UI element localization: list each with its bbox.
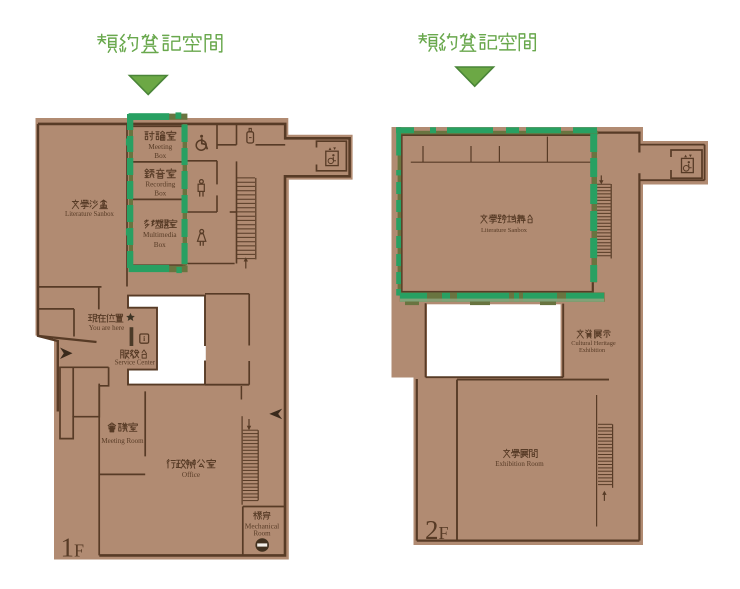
svg-text:You are here: You are here xyxy=(89,324,124,332)
svg-text:Exhibition Room: Exhibition Room xyxy=(495,460,544,468)
svg-text:Office: Office xyxy=(182,471,200,479)
svg-text:Meeting Room: Meeting Room xyxy=(101,437,144,445)
svg-text:Box: Box xyxy=(154,152,166,160)
svg-text:Meeting: Meeting xyxy=(148,143,172,151)
svg-text:Room: Room xyxy=(253,529,271,537)
svg-text:Multimedia: Multimedia xyxy=(143,231,177,239)
svg-text:Literature Sanbox: Literature Sanbox xyxy=(65,211,114,218)
svg-text:Service Center: Service Center xyxy=(115,360,156,367)
svg-text:Recording: Recording xyxy=(145,181,175,189)
svg-text:Box: Box xyxy=(154,241,166,249)
svg-text:Exhibition: Exhibition xyxy=(579,347,605,354)
svg-text:Box: Box xyxy=(154,190,166,198)
svg-text:i: i xyxy=(143,334,145,343)
svg-text:Literature Sanbox: Literature Sanbox xyxy=(481,227,528,234)
